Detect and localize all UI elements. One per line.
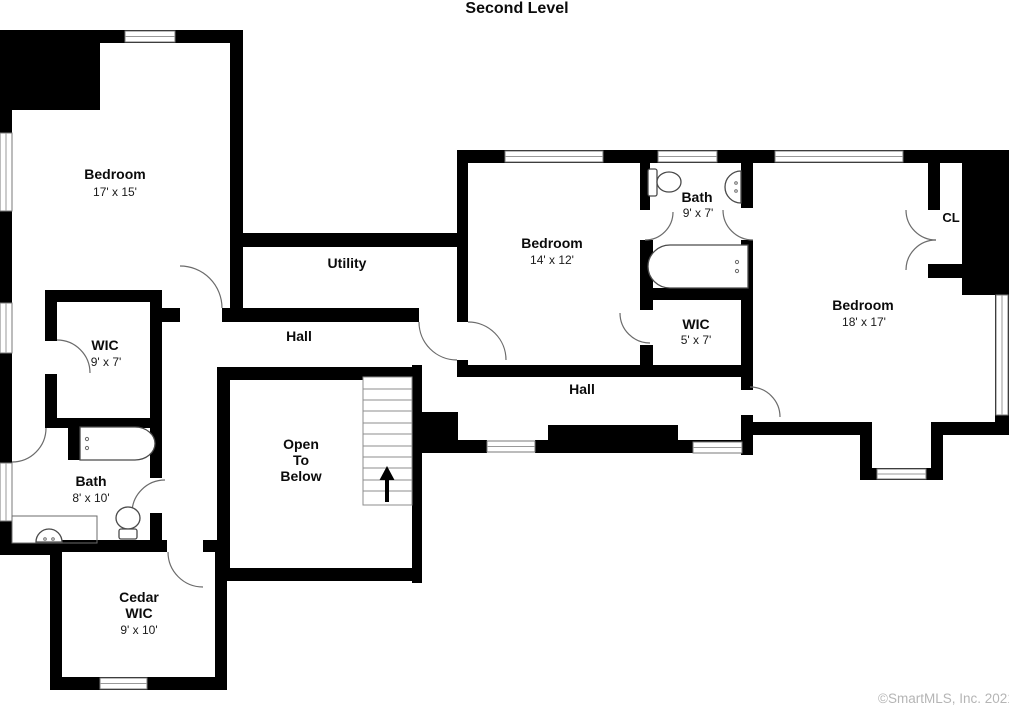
room-dims-bedroom-tl: 17' x 15' bbox=[93, 185, 137, 199]
room-label-wic-tl: WIC bbox=[91, 337, 118, 353]
wall bbox=[68, 423, 80, 460]
room-label-hall-right: Hall bbox=[569, 381, 595, 397]
utility-door-arc bbox=[419, 322, 457, 360]
wall bbox=[0, 30, 100, 110]
room-dims-wic-mid: 5' x 7' bbox=[681, 333, 712, 347]
wall bbox=[217, 568, 422, 581]
bedroom-right-door-arc bbox=[750, 387, 780, 417]
bath-mid-window bbox=[658, 151, 717, 162]
hall-right-window bbox=[693, 442, 742, 453]
toilet-tank bbox=[648, 169, 657, 196]
bath-mid-left-door-arc bbox=[645, 212, 673, 240]
room-label-open-below-3: Below bbox=[280, 468, 321, 484]
room-dims-bath-left: 8' x 10' bbox=[72, 491, 109, 505]
bath-left-door-arc bbox=[12, 428, 46, 462]
wall bbox=[45, 290, 57, 341]
room-label-open-below-2: To bbox=[293, 452, 309, 468]
wall bbox=[458, 440, 487, 453]
wall bbox=[745, 422, 865, 435]
wic-tl-door-arc bbox=[57, 340, 90, 373]
room-label-hall-left: Hall bbox=[286, 328, 312, 344]
bedroom-right-window bbox=[775, 151, 903, 162]
left-wall-window bbox=[0, 303, 12, 353]
bedroom-tl-window bbox=[125, 31, 175, 42]
room-dims-cedar-wic: 9' x 10' bbox=[120, 623, 157, 637]
sink-icon bbox=[36, 529, 62, 542]
room-dims-bath-mid: 9' x 7' bbox=[683, 206, 714, 220]
wall bbox=[548, 425, 678, 453]
room-label-closet: CL bbox=[942, 210, 959, 225]
room-dims-bedroom-mid: 14' x 12' bbox=[530, 253, 574, 267]
wall bbox=[943, 422, 1009, 435]
bath-left-hall-door-arc bbox=[132, 480, 165, 513]
floorplan-canvas: Second Level Bedroom 17' x 15' Utility W… bbox=[0, 0, 1009, 711]
room-label-bedroom-tl: Bedroom bbox=[84, 166, 145, 182]
floorplan-page: Second Level Bedroom 17' x 15' Utility W… bbox=[0, 0, 1009, 711]
wall bbox=[457, 150, 468, 322]
wall bbox=[928, 264, 973, 278]
wall bbox=[741, 365, 753, 390]
sink-icon bbox=[725, 171, 741, 203]
room-label-cedar-wic-2: WIC bbox=[125, 605, 152, 621]
room-label-bedroom-mid: Bedroom bbox=[521, 235, 582, 251]
wall bbox=[57, 540, 167, 552]
page-title: Second Level bbox=[465, 0, 568, 17]
watermark: ©SmartMLS, Inc. 2021 bbox=[878, 691, 1009, 706]
room-label-open-below-1: Open bbox=[283, 436, 319, 452]
wall bbox=[931, 422, 943, 480]
staircase bbox=[363, 377, 412, 505]
bay-window bbox=[877, 469, 926, 479]
left-wall-window bbox=[0, 133, 12, 211]
wall bbox=[535, 440, 548, 453]
wic-mid-door-arc bbox=[620, 313, 650, 343]
wall bbox=[150, 290, 162, 428]
wall bbox=[162, 308, 180, 322]
room-label-cedar-wic-1: Cedar bbox=[119, 589, 159, 605]
bedroom-mid-door-arc bbox=[468, 322, 506, 360]
room-label-bedroom-right: Bedroom bbox=[832, 297, 893, 313]
bath-mid-right-door-arc bbox=[723, 210, 753, 240]
bedroom-tl-door-arc bbox=[180, 266, 222, 308]
wall bbox=[217, 367, 230, 580]
room-dims-wic-tl: 9' x 7' bbox=[91, 355, 122, 369]
cedar-wic-window bbox=[100, 678, 147, 689]
wall bbox=[928, 163, 940, 210]
hall-right-window bbox=[487, 441, 535, 452]
bedroom-mid-window bbox=[505, 151, 603, 162]
right-wall-window bbox=[996, 295, 1008, 415]
wall bbox=[222, 308, 243, 322]
room-label-bath-left: Bath bbox=[75, 473, 106, 489]
toilet-icon bbox=[657, 172, 681, 192]
wall bbox=[412, 365, 422, 583]
wall bbox=[243, 308, 419, 322]
wall bbox=[0, 543, 57, 555]
wall bbox=[45, 290, 162, 302]
wall bbox=[457, 365, 753, 377]
wall bbox=[230, 30, 243, 322]
wall bbox=[422, 412, 458, 453]
cedar-wic-door-arc bbox=[168, 552, 203, 587]
room-label-wic-mid: WIC bbox=[682, 316, 709, 332]
toilet-icon bbox=[116, 507, 140, 529]
wall bbox=[741, 163, 753, 208]
left-wall-window bbox=[0, 463, 12, 521]
room-label-utility: Utility bbox=[328, 255, 367, 271]
closet-double-door-arc bbox=[906, 210, 936, 240]
wall bbox=[237, 233, 468, 247]
bathtub-icon bbox=[648, 245, 748, 288]
toilet-tank bbox=[119, 529, 137, 539]
bathtub-icon bbox=[80, 427, 155, 460]
room-dims-bedroom-right: 18' x 17' bbox=[842, 315, 886, 329]
wall bbox=[50, 540, 62, 690]
room-label-bath-mid: Bath bbox=[681, 189, 712, 205]
wall bbox=[640, 288, 753, 300]
